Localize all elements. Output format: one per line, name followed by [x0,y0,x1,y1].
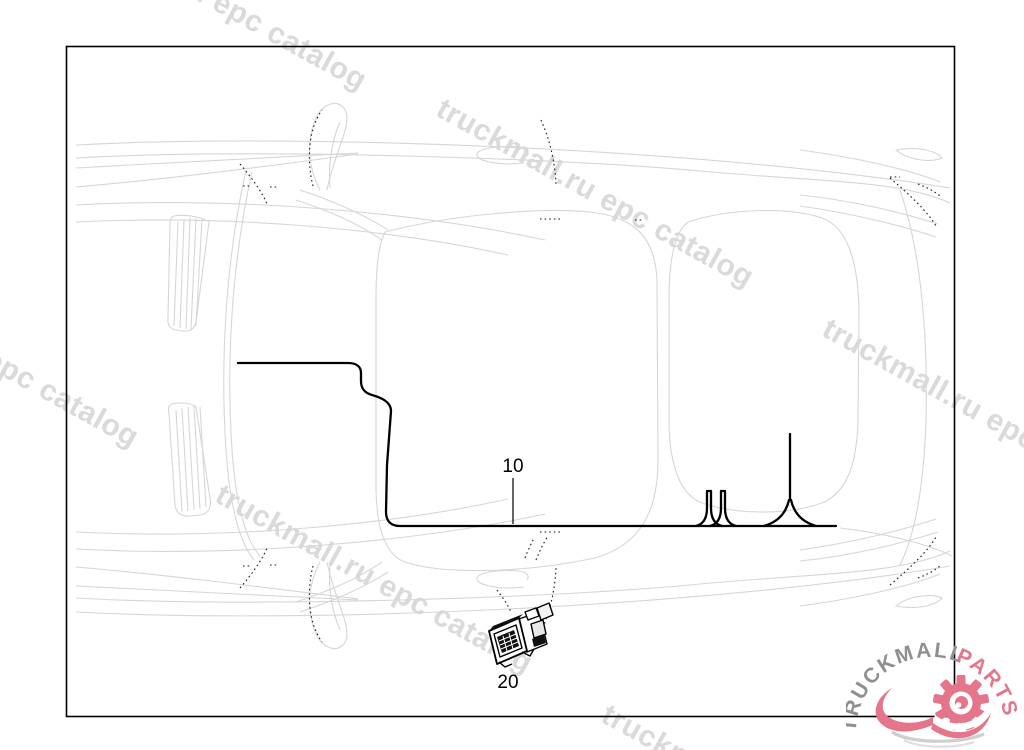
wiring-harness [238,363,836,526]
mirror-bottom [310,562,347,649]
headlight-left-top [168,215,209,331]
page: truckmall.ru epc catalog truckmall.ru ep… [0,0,1024,750]
headlight-left-bottom [168,403,210,516]
parts-diagram-canvas: 10 20 [0,0,1024,750]
cabin-outline [376,211,658,571]
car-outline [76,103,952,648]
connector-part-art [489,603,553,667]
callout-10-label[interactable]: 10 [502,456,523,477]
rear-deck-outline [669,211,859,512]
mirror-top [310,103,347,190]
gear-icon [876,675,991,747]
brand-logo: TRUCKMALL PARTS [846,640,1024,750]
callout-20-label[interactable]: 20 [497,672,518,693]
